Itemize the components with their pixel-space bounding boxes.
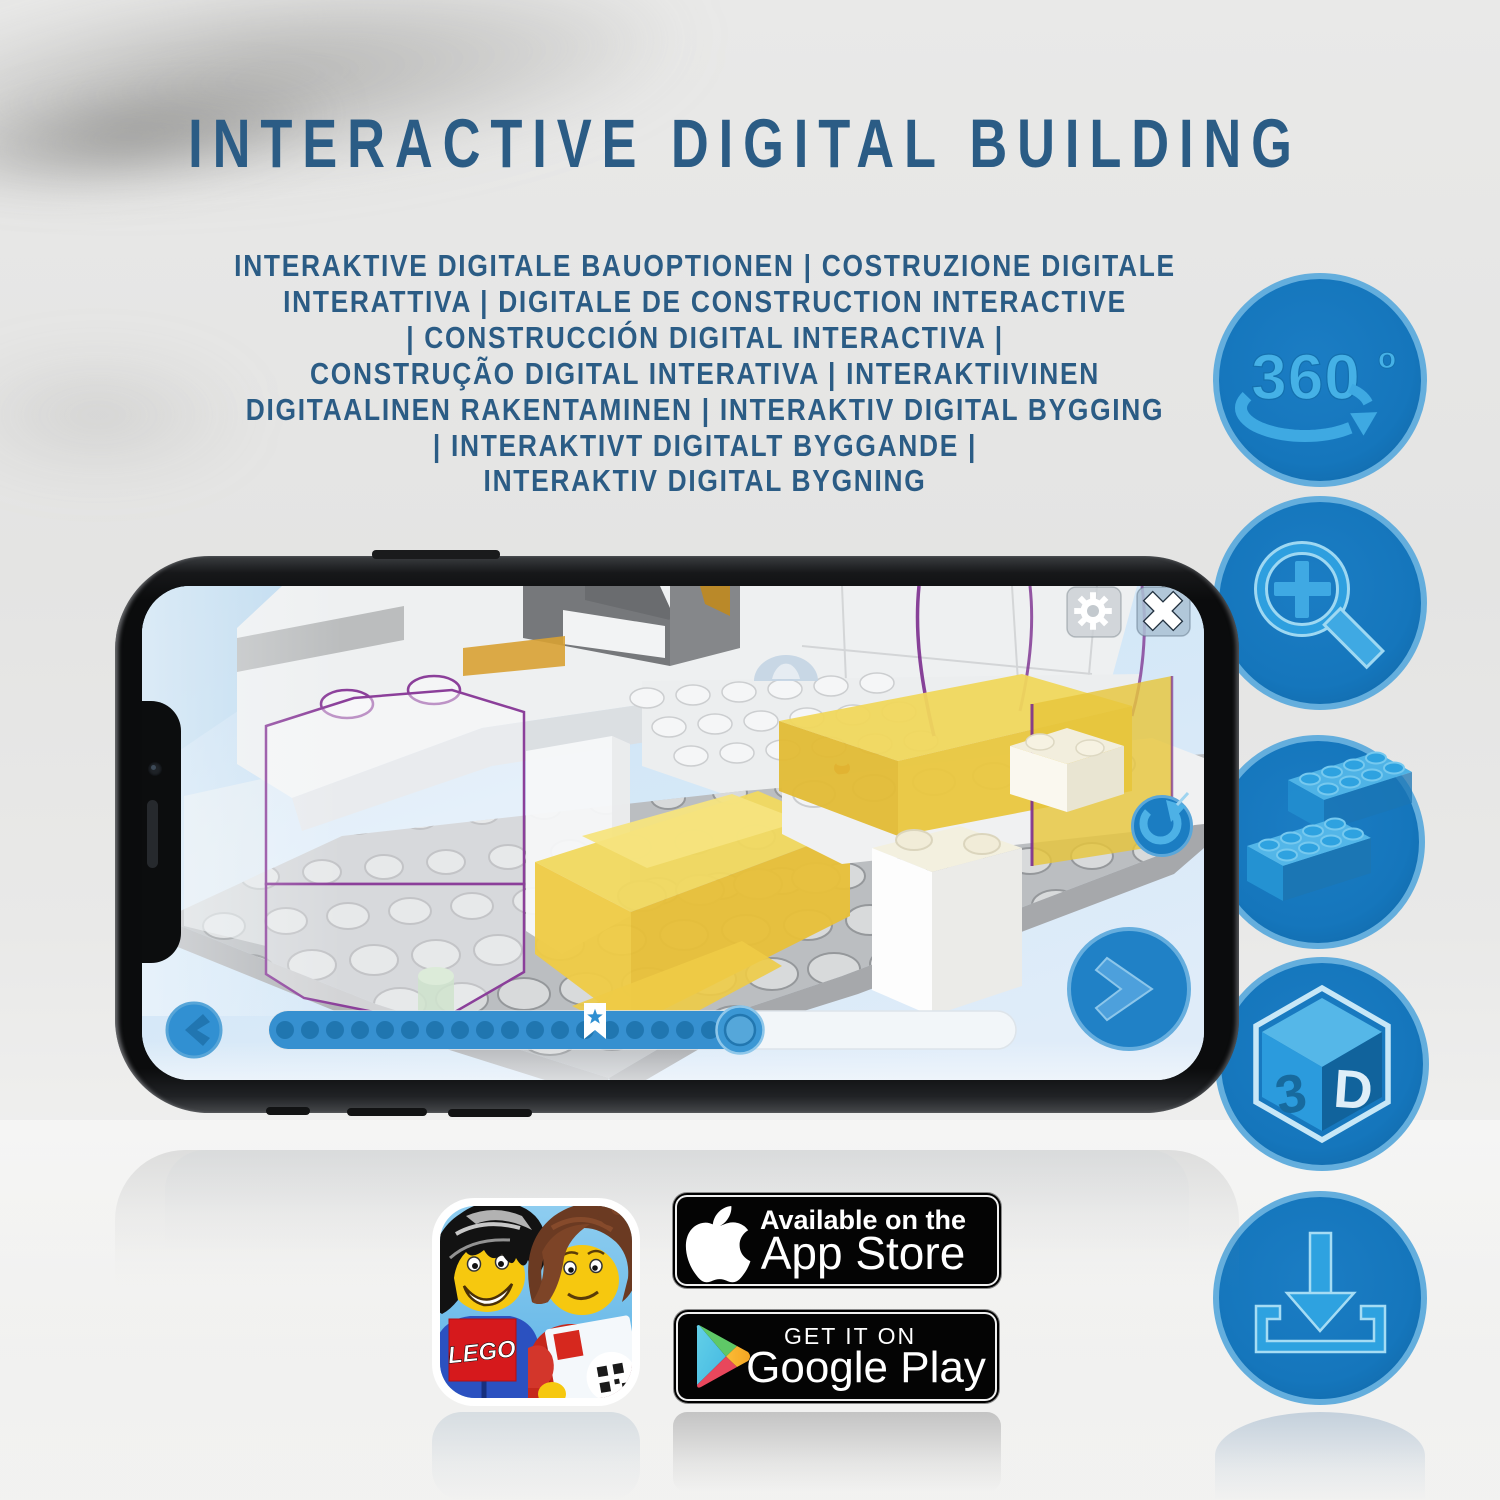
svg-text:D: D [1332,1059,1375,1122]
svg-text:o: o [1378,342,1396,375]
svg-text:360: 360 [1251,341,1361,413]
svg-text:Google Play: Google Play [746,1343,986,1392]
svg-text:App Store: App Store [761,1227,966,1279]
